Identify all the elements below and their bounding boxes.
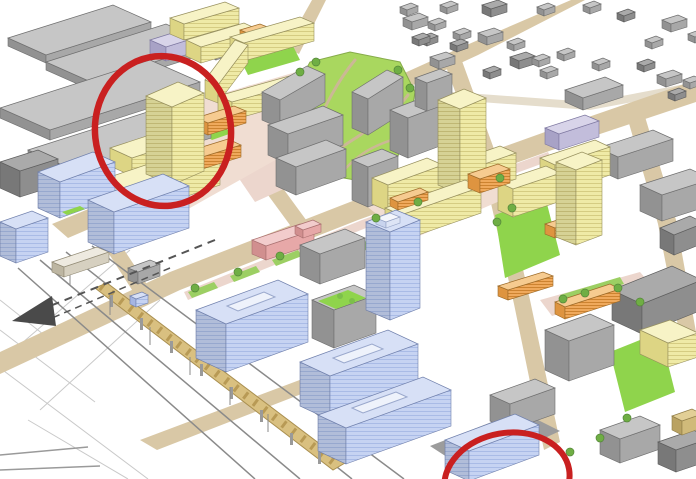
guideway-pier bbox=[260, 410, 263, 422]
park-apartment-end bbox=[352, 92, 368, 135]
street-tree bbox=[559, 295, 567, 303]
roof-garden-tree bbox=[349, 298, 355, 304]
street-tree bbox=[596, 434, 604, 442]
scene-layers bbox=[0, 0, 696, 479]
street-tree bbox=[496, 174, 504, 182]
guideway-pier bbox=[318, 452, 321, 464]
guideway-pier bbox=[140, 318, 143, 330]
street-tree bbox=[372, 214, 380, 222]
street-tree bbox=[296, 68, 304, 76]
street-tree bbox=[276, 252, 284, 260]
guideway-pier bbox=[170, 341, 173, 353]
street-tree bbox=[414, 198, 422, 206]
circled-residential-tower-end-shade bbox=[146, 96, 172, 185]
east-residential-tower-front bbox=[576, 160, 602, 245]
street-tree bbox=[636, 298, 644, 306]
street-tree bbox=[394, 66, 402, 74]
street-tree bbox=[406, 84, 414, 92]
street-tree bbox=[508, 204, 516, 212]
circled-residential-tower-front bbox=[172, 93, 204, 185]
center-residential-tower-end-shade bbox=[438, 100, 460, 194]
guideway-pier bbox=[290, 433, 293, 445]
street-tree bbox=[581, 289, 589, 297]
street-tree bbox=[623, 414, 631, 422]
site-plan-3d-rendering bbox=[0, 0, 696, 479]
roof-garden-tree bbox=[337, 293, 343, 299]
park-apartment-end bbox=[415, 78, 427, 111]
street-tree bbox=[191, 284, 199, 292]
street-tree bbox=[493, 218, 501, 226]
guideway-pier bbox=[200, 364, 203, 376]
east-residential-tower-end-shade bbox=[556, 162, 576, 245]
street-tree bbox=[234, 268, 242, 276]
park-apartment-end bbox=[390, 110, 408, 158]
street-tree bbox=[614, 284, 622, 292]
office-tower-end-shade bbox=[366, 222, 390, 320]
rendering-canvas bbox=[0, 0, 696, 479]
center-midrise-end bbox=[352, 160, 368, 207]
office-tower-front bbox=[390, 220, 420, 320]
street-tree bbox=[566, 448, 574, 456]
street-tree bbox=[312, 58, 320, 66]
